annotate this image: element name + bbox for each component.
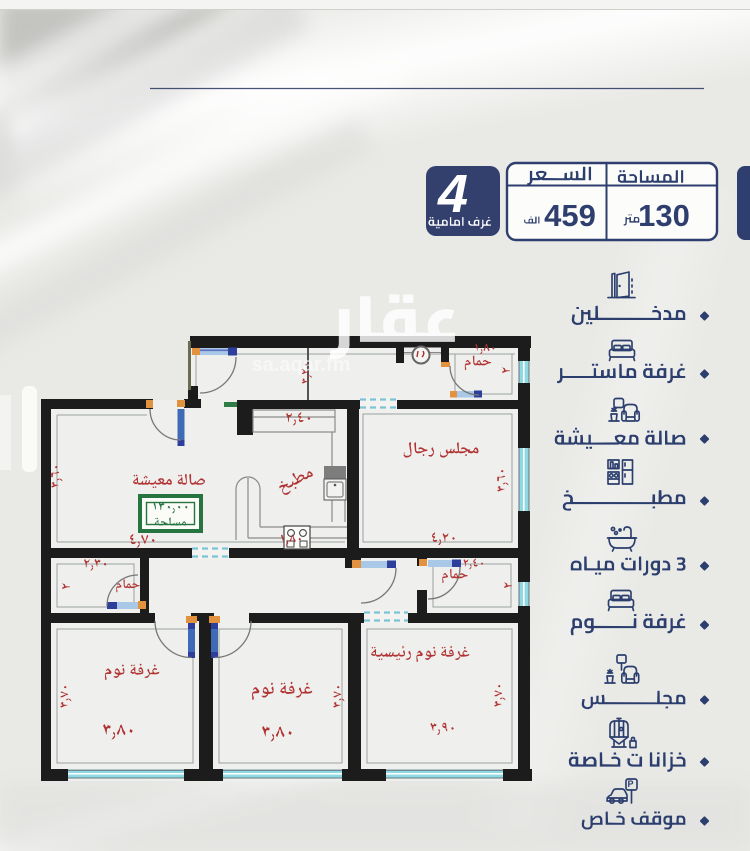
svg-text:459: 459: [544, 198, 596, 233]
svg-text:130: 130: [638, 198, 690, 233]
svg-text:P: P: [627, 779, 633, 789]
svg-text:sa.aqar.fm: sa.aqar.fm: [252, 354, 351, 376]
svg-text:4: 4: [437, 164, 468, 224]
